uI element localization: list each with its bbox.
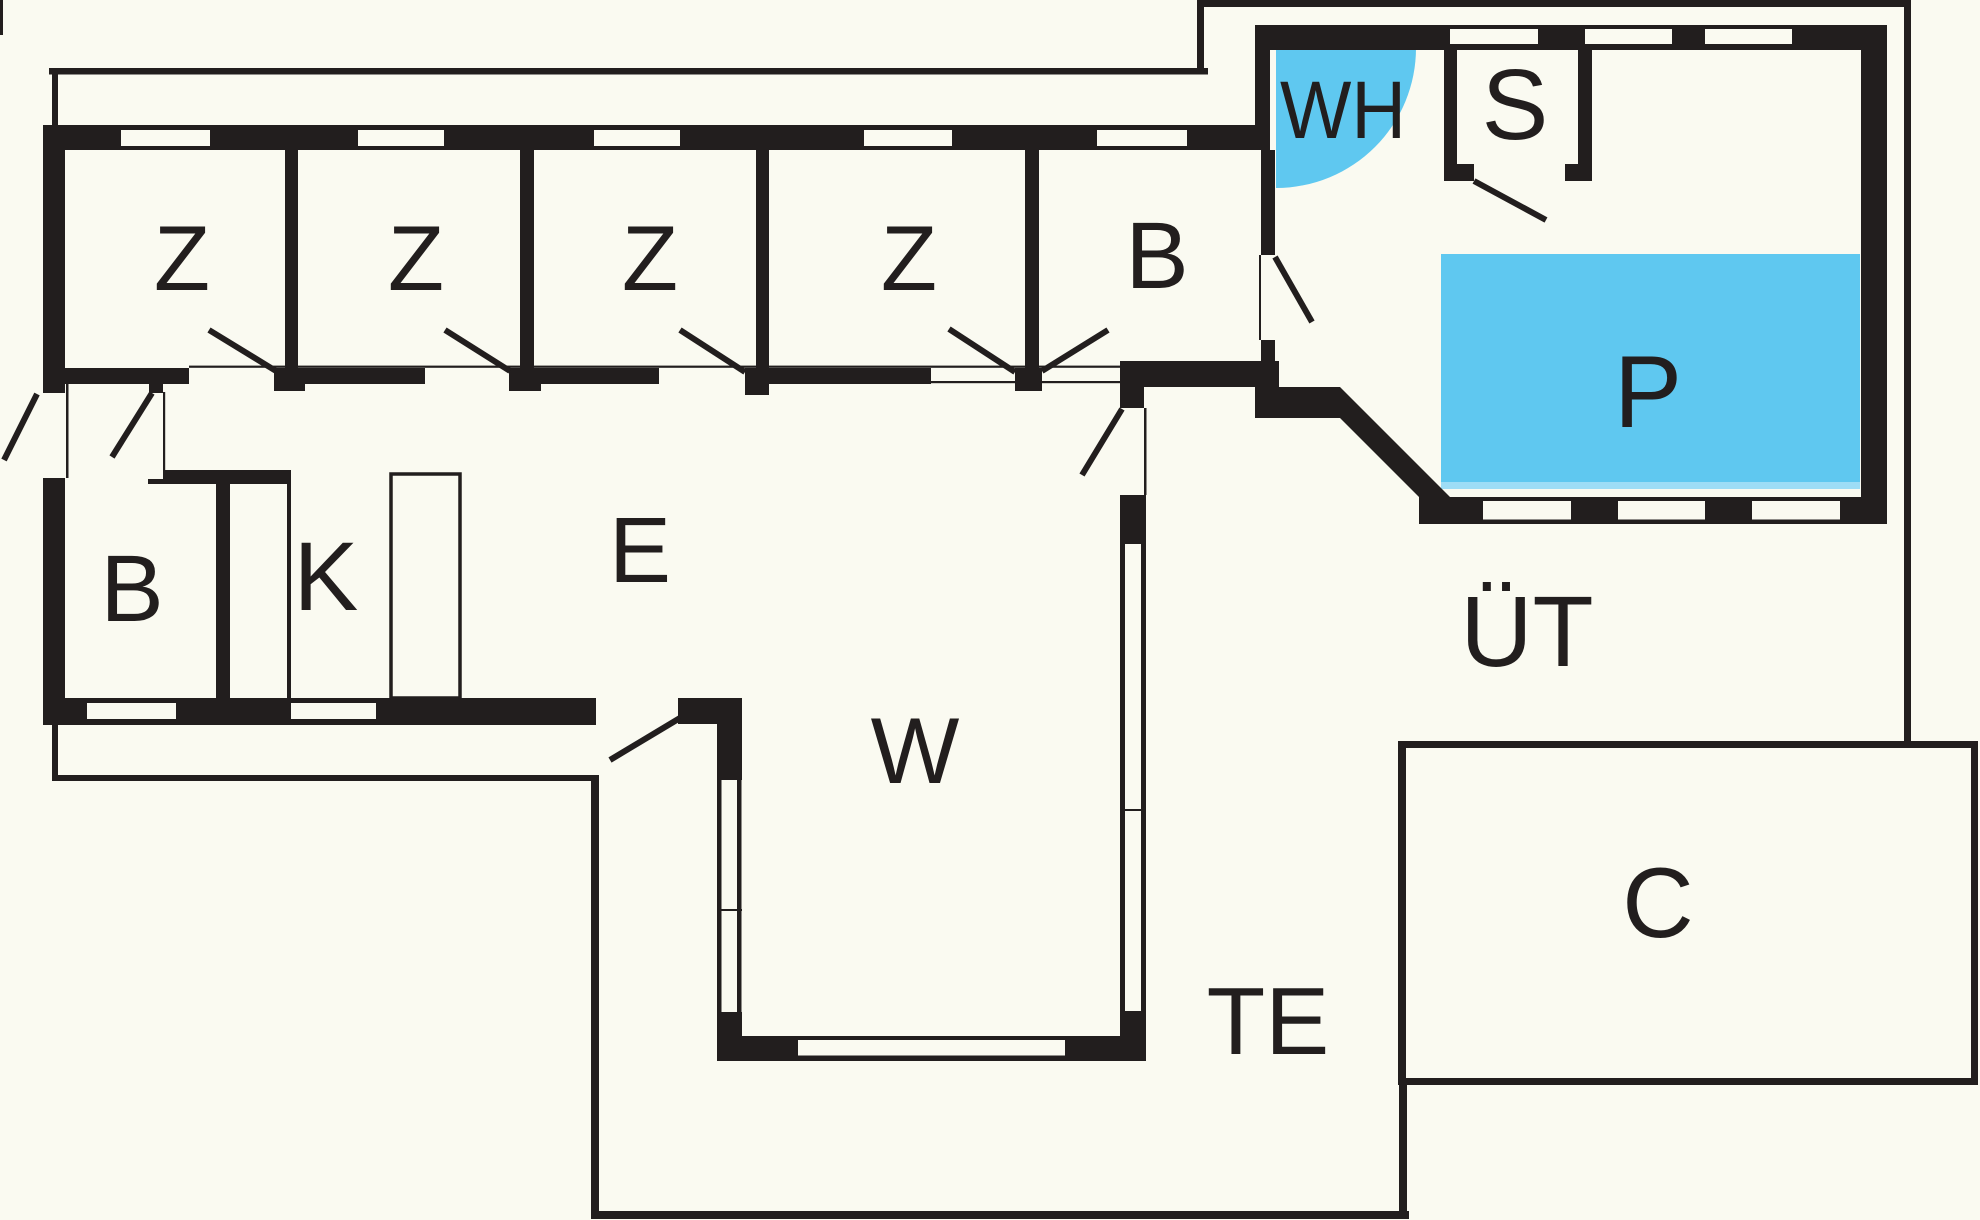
- svg-text:W: W: [871, 698, 960, 803]
- svg-text:TE: TE: [1207, 968, 1330, 1075]
- svg-text:WH: WH: [1280, 65, 1406, 156]
- svg-text:B: B: [100, 536, 163, 642]
- svg-text:C: C: [1622, 847, 1694, 958]
- svg-text:Z: Z: [388, 208, 444, 310]
- svg-text:E: E: [609, 498, 671, 602]
- svg-text:P: P: [1614, 335, 1682, 449]
- svg-text:Z: Z: [881, 208, 937, 310]
- svg-text:ÜT: ÜT: [1460, 576, 1593, 688]
- svg-text:S: S: [1482, 49, 1549, 161]
- svg-text:Z: Z: [154, 208, 210, 310]
- svg-text:K: K: [294, 522, 359, 631]
- svg-text:Z: Z: [622, 208, 678, 310]
- svg-text:B: B: [1125, 203, 1188, 309]
